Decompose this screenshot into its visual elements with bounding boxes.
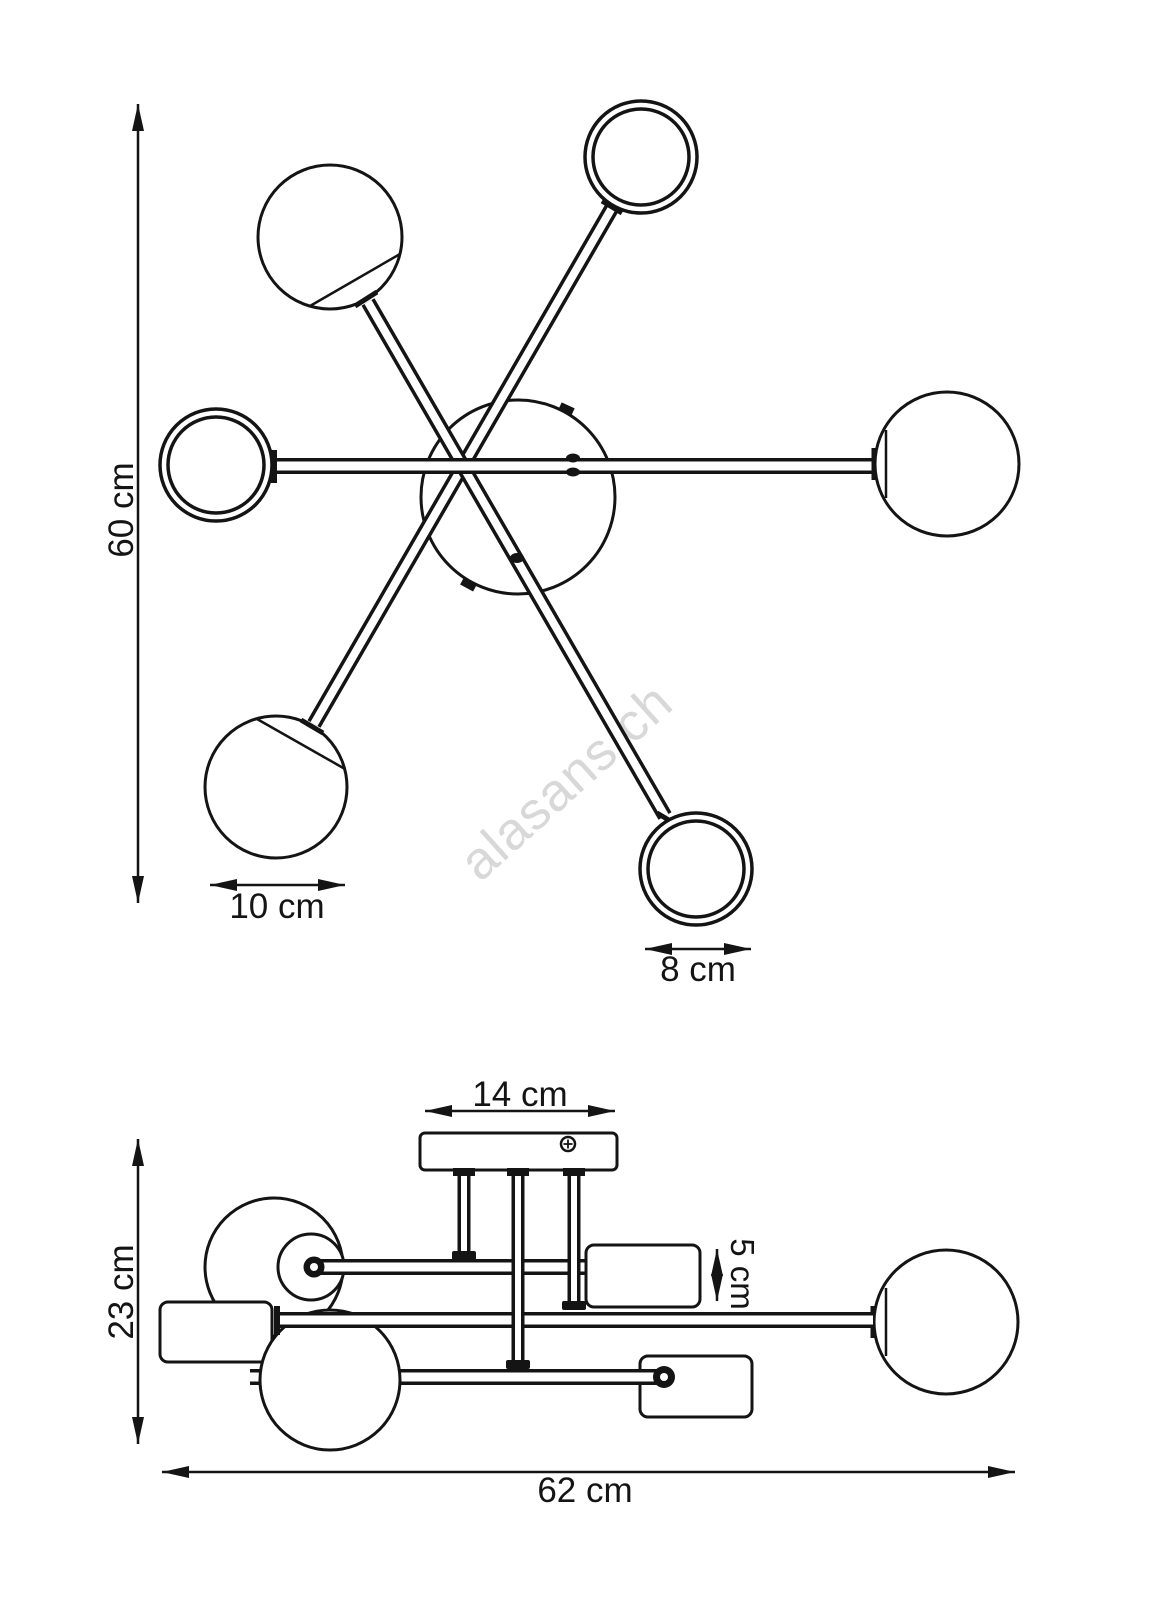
cylinder-shade-left <box>160 1302 272 1362</box>
screw-head <box>566 454 580 463</box>
side-view <box>160 1133 1018 1450</box>
lamp-dimension-diagram: alasans.ch <box>0 0 1157 1600</box>
screw-head <box>566 468 580 477</box>
dimension-label-14cm: 14 cm <box>472 1075 567 1114</box>
dimension-label-5cm: 5 cm <box>724 1238 761 1310</box>
screw-head <box>510 553 524 563</box>
ceiling-canopy <box>420 1133 617 1170</box>
hub-tab <box>560 406 573 412</box>
dimension-label-8cm: 8 cm <box>660 950 736 989</box>
dimension-label-60cm: 60 cm <box>102 462 141 557</box>
glass-sphere-side-right <box>873 1250 1018 1394</box>
glass-sphere-bottom-left <box>205 716 347 858</box>
cylinder-shade-right <box>586 1245 700 1307</box>
stem-right <box>562 1168 586 1310</box>
ring-shade-top-right <box>585 101 697 213</box>
technical-drawing-page: alasans.ch <box>0 0 1157 1600</box>
glass-sphere-right <box>874 392 1019 536</box>
dimension-label-23cm: 23 cm <box>102 1244 141 1339</box>
dimension-label-10cm: 10 cm <box>229 887 324 926</box>
arm-upper <box>304 1257 601 1278</box>
stem-left <box>452 1168 476 1260</box>
ring-shade-bottom-right <box>640 813 752 925</box>
glass-sphere-front <box>260 1310 400 1450</box>
ring-shade-left <box>160 409 274 521</box>
top-view <box>160 101 1019 925</box>
glass-sphere-top-left <box>258 165 402 309</box>
cylinder-shade-bottom <box>640 1356 752 1417</box>
dimension-label-62cm: 62 cm <box>537 1471 632 1510</box>
